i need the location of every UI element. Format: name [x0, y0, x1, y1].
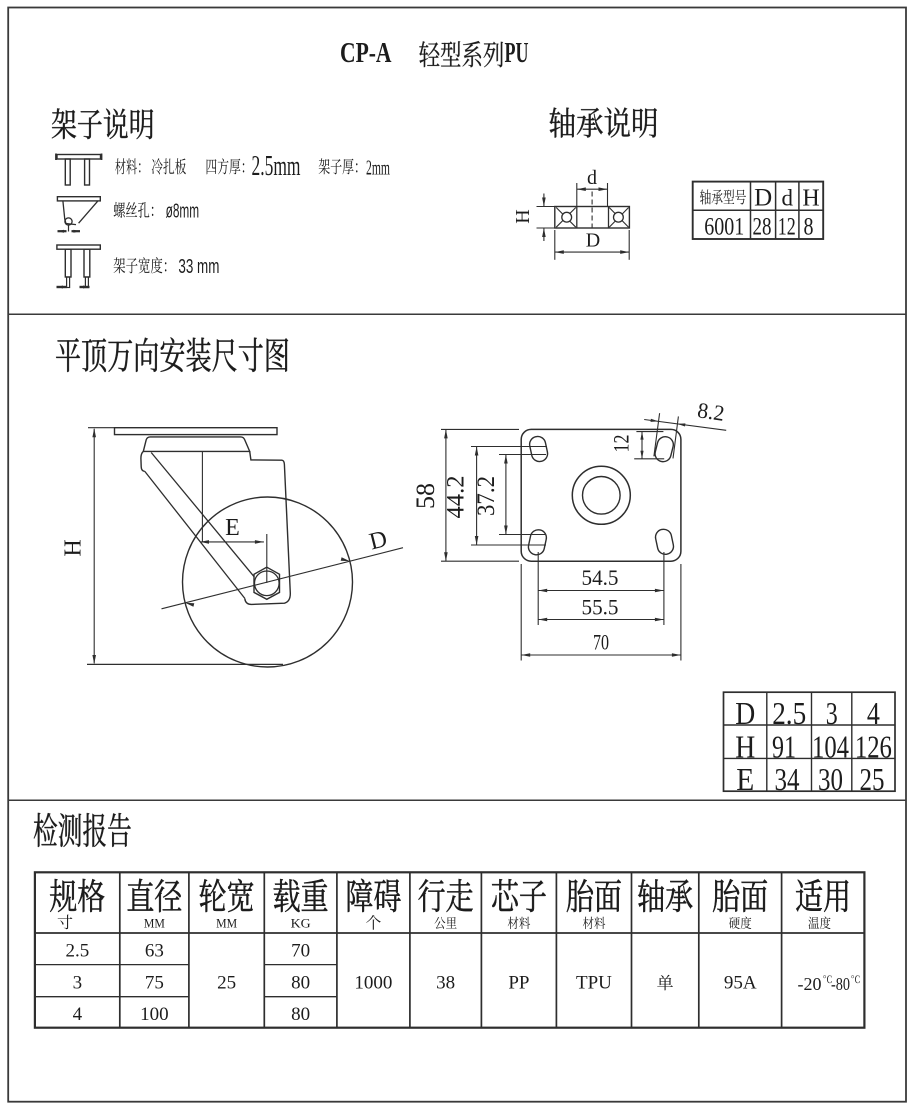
svg-text:70: 70 [291, 941, 310, 962]
svg-text:D: D [586, 230, 600, 252]
svg-text:KG: KG [291, 916, 311, 931]
svg-text:1000: 1000 [354, 973, 392, 994]
svg-text:3: 3 [73, 973, 83, 994]
svg-text:80: 80 [291, 973, 310, 994]
svg-text:75: 75 [145, 973, 164, 994]
svg-text:3: 3 [826, 695, 838, 731]
svg-text:E: E [225, 515, 240, 541]
svg-text:PU: PU [505, 38, 529, 69]
svg-text:H: H [735, 728, 755, 764]
svg-text:MM: MM [216, 916, 237, 931]
svg-text:38: 38 [436, 973, 455, 994]
svg-text:d: d [587, 167, 597, 189]
svg-text:CP-A: CP-A [340, 37, 392, 69]
svg-text:25: 25 [217, 973, 236, 994]
svg-text:37.2: 37.2 [473, 476, 500, 516]
svg-text:PP: PP [508, 973, 529, 994]
svg-text:TPU: TPU [576, 973, 612, 994]
svg-text:-80: -80 [831, 974, 850, 994]
svg-text:ø8mm: ø8mm [166, 200, 200, 222]
svg-text:H: H [512, 209, 534, 223]
svg-text:-20: -20 [798, 974, 822, 994]
svg-text:12: 12 [778, 213, 796, 240]
svg-text:6001: 6001 [704, 213, 744, 240]
svg-text:54.5: 54.5 [582, 565, 619, 590]
svg-text:2mm: 2mm [366, 156, 390, 180]
svg-text:2.5: 2.5 [65, 941, 89, 962]
svg-text:H: H [802, 185, 819, 211]
svg-text:12: 12 [609, 435, 634, 453]
svg-text:d: d [781, 185, 793, 210]
svg-text:E: E [736, 761, 754, 797]
svg-text:25: 25 [860, 761, 885, 797]
svg-text:104: 104 [812, 728, 849, 764]
svg-text:33 mm: 33 mm [178, 256, 219, 278]
svg-text:91: 91 [772, 728, 796, 764]
svg-text:58: 58 [411, 483, 440, 509]
svg-text:55.5: 55.5 [582, 595, 619, 620]
svg-text:126: 126 [855, 728, 892, 764]
svg-text:8.2: 8.2 [696, 397, 726, 426]
svg-text:MM: MM [144, 916, 165, 931]
svg-text:28: 28 [753, 213, 772, 240]
svg-text:D: D [754, 184, 772, 211]
svg-text:34: 34 [775, 761, 800, 797]
svg-text:30: 30 [818, 761, 843, 797]
svg-text:2.5mm: 2.5mm [252, 151, 301, 182]
svg-text:8: 8 [804, 213, 814, 240]
svg-text:95A: 95A [724, 973, 757, 994]
svg-text:44.2: 44.2 [443, 476, 470, 519]
svg-text:70: 70 [593, 630, 609, 655]
svg-text:4: 4 [73, 1004, 83, 1025]
svg-text:63: 63 [145, 941, 164, 962]
svg-text:80: 80 [291, 1004, 310, 1025]
svg-text:100: 100 [140, 1004, 169, 1025]
svg-text:D: D [735, 695, 755, 731]
svg-text:2.5: 2.5 [772, 695, 806, 731]
svg-text:H: H [61, 539, 87, 556]
svg-text:4: 4 [867, 695, 880, 731]
svg-text:D: D [367, 526, 390, 555]
